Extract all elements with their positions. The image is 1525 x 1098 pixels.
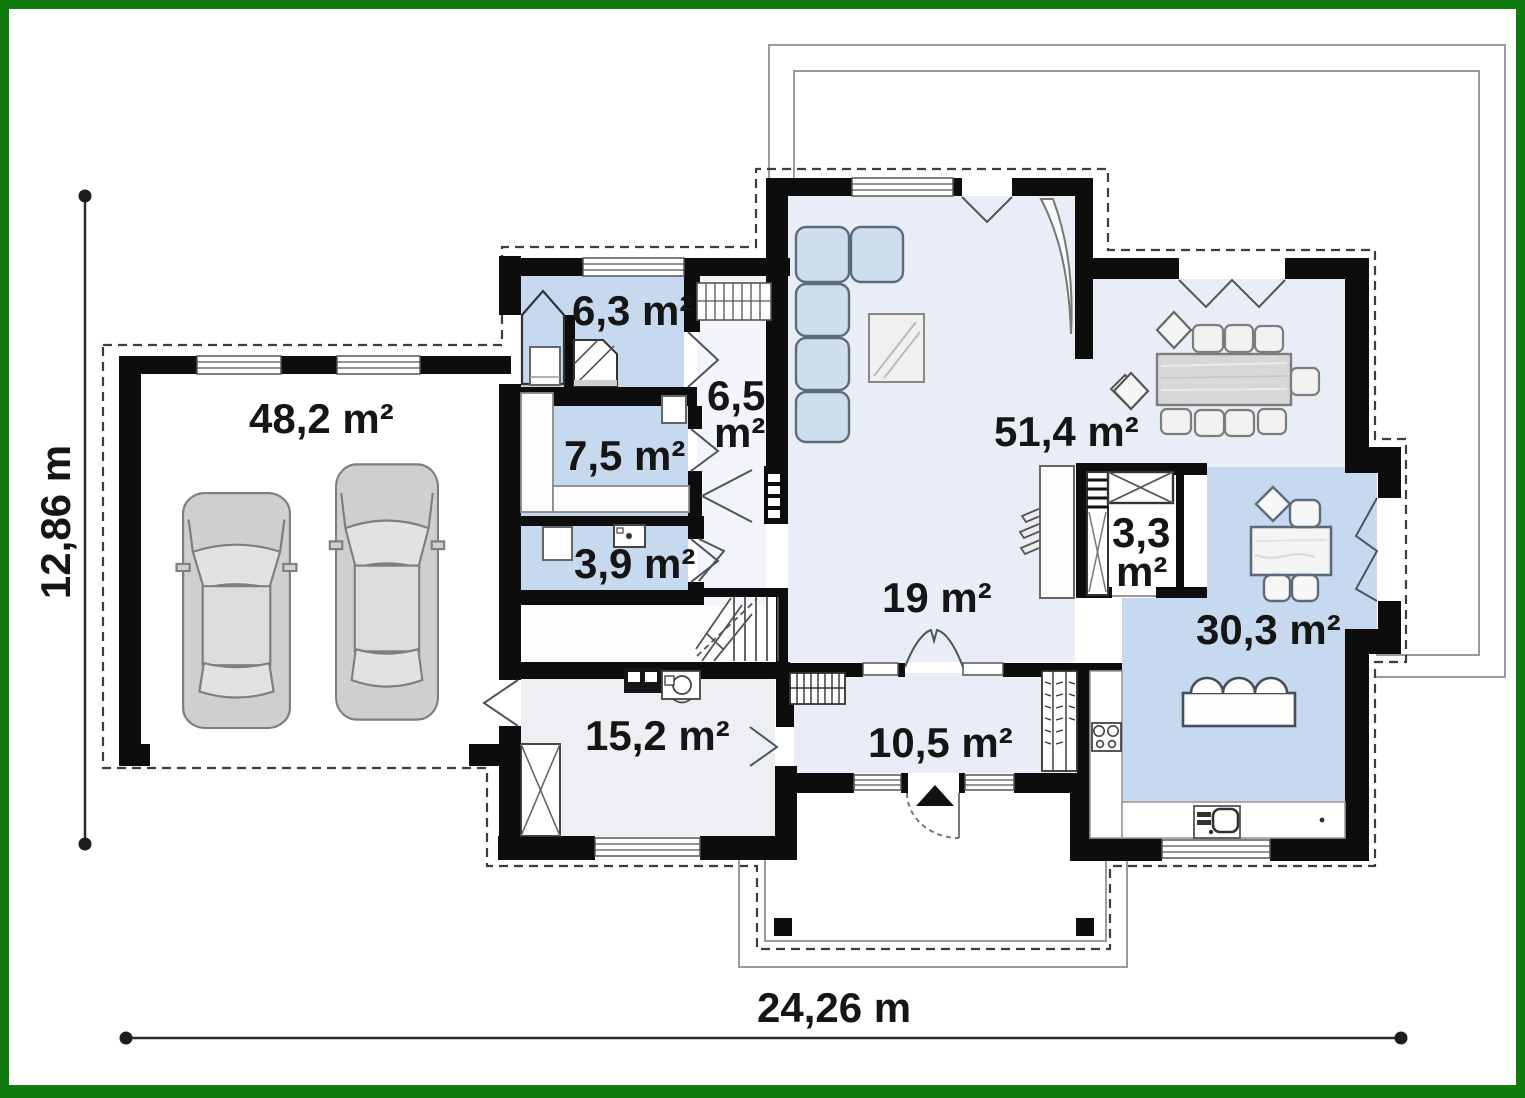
svg-text:24,26 m: 24,26 m <box>757 984 911 1031</box>
svg-text:15,2 m²: 15,2 m² <box>585 712 730 759</box>
svg-text:3,9 m²: 3,9 m² <box>574 540 695 587</box>
svg-text:48,2 m²: 48,2 m² <box>249 395 394 442</box>
svg-text:19 m²: 19 m² <box>882 574 992 621</box>
svg-text:m²: m² <box>1116 548 1167 595</box>
svg-text:10,5 m²: 10,5 m² <box>868 719 1013 766</box>
svg-text:m²: m² <box>714 409 765 456</box>
svg-text:51,4 m²: 51,4 m² <box>994 408 1139 455</box>
svg-text:12,86 m: 12,86 m <box>32 445 79 599</box>
svg-text:6,3 m²: 6,3 m² <box>572 287 693 334</box>
svg-text:30,3 m²: 30,3 m² <box>1196 606 1341 653</box>
svg-text:7,5 m²: 7,5 m² <box>564 432 685 479</box>
